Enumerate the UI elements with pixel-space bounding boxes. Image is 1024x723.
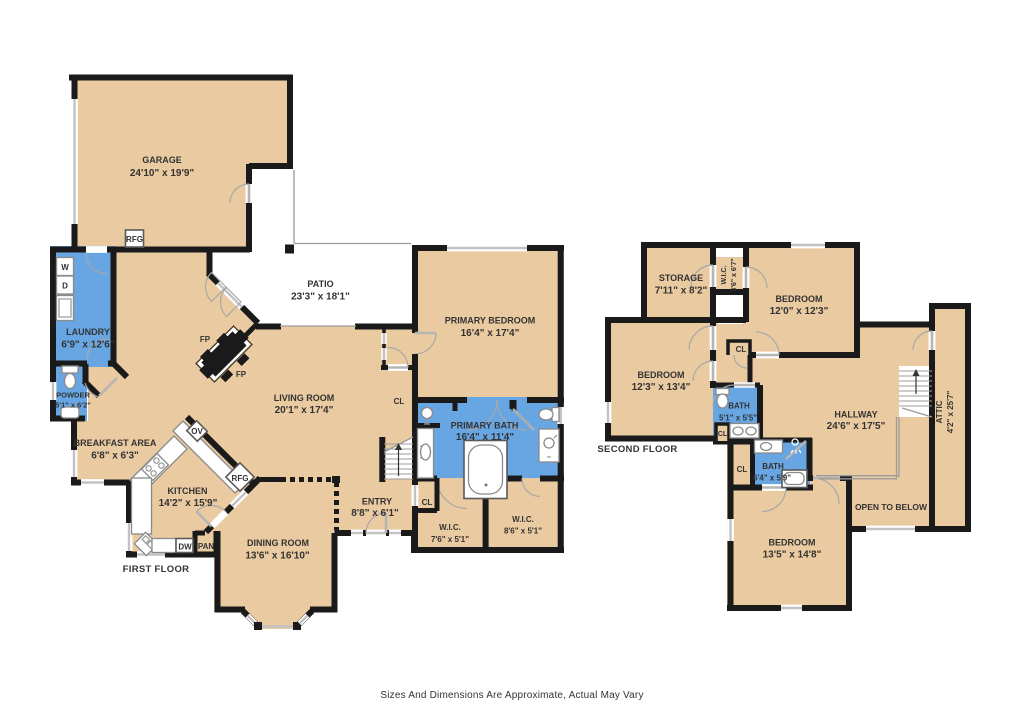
svg-text:23'3" x 18'1": 23'3" x 18'1" — [291, 292, 350, 303]
svg-text:OV: OV — [191, 427, 203, 436]
svg-text:CL: CL — [422, 498, 433, 507]
svg-text:FP: FP — [200, 335, 211, 344]
svg-text:12'0" x 12'3": 12'0" x 12'3" — [770, 306, 829, 317]
svg-text:7'6" x 5'1": 7'6" x 5'1" — [431, 535, 469, 544]
svg-text:8'8" x 6'1": 8'8" x 6'1" — [351, 508, 399, 519]
svg-text:13'6" x 16'10": 13'6" x 16'10" — [245, 551, 310, 562]
svg-text:16'4" x 17'4": 16'4" x 17'4" — [461, 328, 520, 339]
svg-text:4'2" x 25'7": 4'2" x 25'7" — [946, 391, 955, 434]
svg-text:BEDROOM: BEDROOM — [638, 370, 685, 380]
svg-text:FP: FP — [236, 370, 247, 379]
svg-text:12'3" x 13'4": 12'3" x 13'4" — [632, 382, 691, 393]
svg-text:SECOND FLOOR: SECOND FLOOR — [597, 444, 677, 455]
svg-text:STORAGE: STORAGE — [659, 273, 703, 283]
svg-text:CL: CL — [736, 345, 747, 354]
svg-text:OPEN TO BELOW: OPEN TO BELOW — [855, 502, 928, 512]
svg-text:W.I.C.: W.I.C. — [721, 265, 728, 284]
svg-text:24'10" x 19'9": 24'10" x 19'9" — [130, 168, 195, 179]
svg-text:BATH: BATH — [762, 462, 784, 471]
svg-text:20'1" x 17'4": 20'1" x 17'4" — [275, 405, 334, 416]
svg-text:PAN: PAN — [198, 542, 215, 551]
svg-text:CL: CL — [718, 431, 728, 438]
svg-text:BATH: BATH — [728, 402, 750, 411]
svg-text:W.I.C.: W.I.C. — [439, 523, 461, 532]
svg-text:3'6" x 6'7": 3'6" x 6'7" — [731, 258, 738, 291]
svg-text:DW: DW — [178, 543, 192, 552]
svg-text:RFG: RFG — [232, 474, 249, 483]
svg-text:7'11" x 8'2": 7'11" x 8'2" — [655, 286, 708, 297]
svg-text:W: W — [61, 263, 69, 272]
svg-text:LAUNDRY: LAUNDRY — [66, 327, 110, 337]
svg-text:LIVING ROOM: LIVING ROOM — [274, 393, 335, 403]
svg-text:BEDROOM: BEDROOM — [776, 294, 823, 304]
svg-text:5'1" x 5'5": 5'1" x 5'5" — [719, 414, 757, 423]
svg-text:BEDROOM: BEDROOM — [769, 538, 816, 548]
svg-text:PRIMARY BEDROOM: PRIMARY BEDROOM — [445, 316, 536, 326]
svg-text:PRIMARY BATH: PRIMARY BATH — [451, 421, 519, 431]
svg-text:CL: CL — [737, 465, 748, 474]
svg-text:5'1" x 6'2": 5'1" x 6'2" — [55, 401, 91, 410]
svg-text:BREAKFAST AREA: BREAKFAST AREA — [74, 438, 157, 448]
svg-text:13'5" x 14'8": 13'5" x 14'8" — [763, 550, 822, 561]
svg-text:16'4" x 11'4": 16'4" x 11'4" — [456, 432, 514, 443]
svg-text:6'8" x 6'3": 6'8" x 6'3" — [91, 451, 139, 462]
svg-text:6'9" x 12'6": 6'9" x 12'6" — [61, 340, 114, 351]
svg-text:D: D — [62, 282, 68, 291]
svg-text:Sizes And Dimensions Are Appro: Sizes And Dimensions Are Approximate, Ac… — [380, 690, 643, 701]
svg-text:GARAGE: GARAGE — [142, 155, 182, 165]
svg-text:POWDER: POWDER — [56, 391, 90, 400]
svg-text:HALLWAY: HALLWAY — [834, 410, 877, 420]
svg-text:ATTIC: ATTIC — [935, 400, 944, 423]
svg-text:PATIO: PATIO — [307, 279, 333, 289]
svg-text:DINING ROOM: DINING ROOM — [247, 538, 309, 548]
svg-text:KITCHEN: KITCHEN — [168, 486, 208, 496]
svg-text:FIRST FLOOR: FIRST FLOOR — [123, 564, 190, 575]
svg-text:RFG: RFG — [126, 235, 143, 244]
svg-text:8'6" x 5'1": 8'6" x 5'1" — [504, 527, 542, 536]
svg-text:CL: CL — [394, 397, 405, 406]
svg-text:24'6" x 17'5": 24'6" x 17'5" — [827, 421, 886, 432]
svg-text:W.I.C.: W.I.C. — [512, 515, 534, 524]
svg-text:14'2" x 15'9": 14'2" x 15'9" — [159, 498, 218, 509]
svg-text:6'4" x 5'9": 6'4" x 5'9" — [753, 474, 791, 483]
svg-text:ENTRY: ENTRY — [362, 497, 392, 507]
